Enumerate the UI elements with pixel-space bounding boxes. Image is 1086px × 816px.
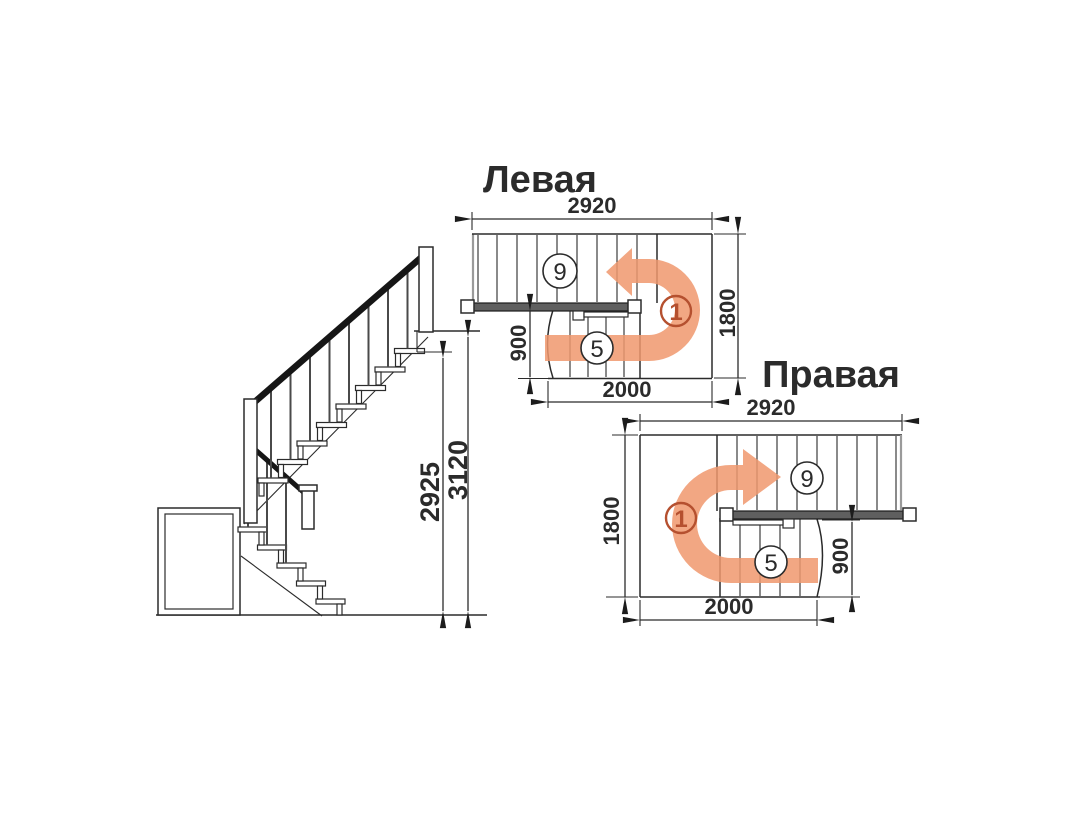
plan-left: Левая (461, 159, 746, 408)
dim-lower-run-label: 2000 (705, 594, 754, 619)
step-9-label: 9 (800, 466, 813, 493)
upper-handrail (250, 255, 424, 406)
plan-left-dimensions: 2920 1800 900 2000 (472, 193, 746, 408)
elevation-dimensions: 2925 3120 (415, 337, 473, 611)
dim-total-height-label: 3120 (443, 440, 473, 500)
step-1-label: 1 (669, 299, 682, 326)
landing-newel-post (244, 399, 257, 523)
dim-lower-rise-label: 900 (828, 538, 853, 575)
lower-newel-post (302, 489, 314, 529)
dim-depth-label: 1800 (599, 497, 624, 546)
lower-newel-cap (299, 485, 317, 491)
staircase-diagram: 2925 3120 Левая (0, 0, 1086, 816)
dim-width-label: 2920 (568, 193, 617, 218)
landing-box (158, 508, 240, 615)
step-1-label: 1 (674, 506, 687, 533)
plan-right-title: Правая (762, 354, 900, 396)
lower-flight-steps (238, 527, 345, 615)
upper-flight-stringer (241, 337, 428, 616)
dim-lower-rise-label: 900 (506, 325, 531, 362)
step-5-label: 5 (590, 336, 603, 363)
step-5-label: 5 (764, 550, 777, 577)
step-9-label: 9 (553, 259, 566, 286)
elevation-side-view: 2925 3120 (156, 247, 487, 616)
dim-walk-height-label: 2925 (415, 462, 445, 522)
dim-depth-label: 1800 (715, 289, 740, 338)
top-newel-post (419, 247, 433, 332)
dim-width-label: 2920 (747, 395, 796, 420)
staircase-diagram-canvas: 2925 3120 Левая (0, 0, 1086, 816)
dim-lower-run-label: 2000 (603, 377, 652, 402)
